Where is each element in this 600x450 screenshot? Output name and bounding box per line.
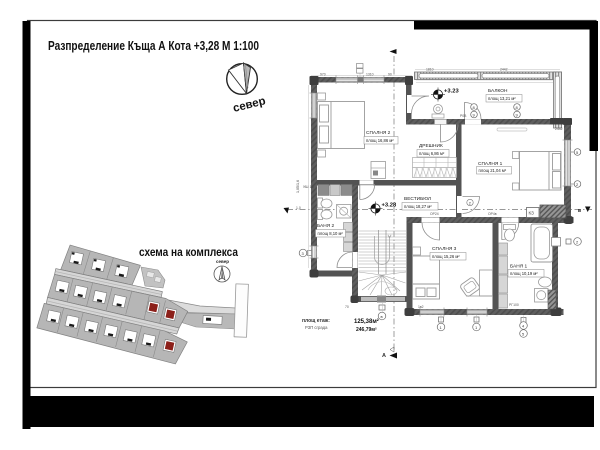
svg-text:БАЛКОН: БАЛКОН bbox=[488, 88, 508, 94]
svg-text:ДРЕШНИК: ДРЕШНИК bbox=[419, 143, 443, 149]
svg-text:70: 70 bbox=[345, 305, 349, 309]
svg-text:1в2: 1в2 bbox=[418, 305, 424, 309]
svg-text:РЗП сграда: РЗП сграда bbox=[305, 325, 328, 330]
svg-text:970: 970 bbox=[320, 73, 326, 77]
svg-text:СПАЛНЯ 2: СПАЛНЯ 2 bbox=[366, 130, 391, 136]
svg-text:БАНЯ 1: БАНЯ 1 bbox=[510, 264, 528, 270]
svg-text:246,79м²: 246,79м² bbox=[356, 327, 377, 333]
svg-text:площ 10,19 м²: площ 10,19 м² bbox=[510, 271, 538, 276]
svg-text:площ 15,26 м²: площ 15,26 м² bbox=[432, 254, 460, 259]
svg-text:1,0: 1,0 bbox=[296, 206, 301, 210]
svg-text:в: в bbox=[381, 314, 383, 319]
svg-text:+3.23: +3.23 bbox=[444, 89, 459, 95]
svg-text:в: в bbox=[578, 208, 581, 214]
svg-text:1310: 1310 bbox=[366, 73, 374, 77]
svg-text:площ 18,27 м²: площ 18,27 м² bbox=[404, 204, 432, 209]
svg-text:площ 21,04 м²: площ 21,04 м² bbox=[479, 168, 507, 173]
svg-text:1810: 1810 bbox=[426, 68, 434, 72]
svg-text:1,05/1,6: 1,05/1,6 bbox=[296, 180, 300, 193]
svg-text:2: 2 bbox=[469, 202, 471, 206]
svg-text:схема на комплекса: схема на комплекса bbox=[139, 245, 238, 259]
svg-text:Р0В: Р0В bbox=[460, 114, 467, 118]
svg-text:площ 6,86 м²: площ 6,86 м² bbox=[419, 151, 445, 156]
svg-text:площ 16,86 м²: площ 16,86 м² bbox=[366, 138, 394, 143]
svg-text:север: север bbox=[216, 259, 229, 264]
svg-text:СПАЛНЯ 1: СПАЛНЯ 1 bbox=[478, 161, 503, 167]
svg-text:90: 90 bbox=[388, 73, 392, 77]
svg-text:Разпределение Къща А Кота +3,2: Разпределение Къща А Кота +3,28 М 1:100 bbox=[48, 38, 259, 53]
svg-text:СПАЛНЯ 3: СПАЛНЯ 3 bbox=[432, 246, 457, 252]
svg-text:площ 13,21 м²: площ 13,21 м² bbox=[488, 96, 516, 101]
svg-text:БАНЯ 2: БАНЯ 2 bbox=[317, 223, 335, 229]
svg-text:площ етаж:: площ етаж: bbox=[302, 318, 330, 324]
svg-text:площ 8,10 м²: площ 8,10 м² bbox=[318, 231, 344, 236]
svg-text:РГ100: РГ100 bbox=[509, 303, 519, 307]
svg-text:+3.28: +3.28 bbox=[382, 203, 397, 209]
svg-text:ОР4в: ОР4в bbox=[488, 212, 497, 216]
svg-text:А: А bbox=[382, 353, 386, 359]
svg-text:КЗ: КЗ bbox=[529, 211, 535, 216]
svg-text:ВЕСТИБЮЛ: ВЕСТИБЮЛ bbox=[404, 196, 431, 202]
svg-text:125,38м²: 125,38м² bbox=[354, 318, 379, 325]
svg-text:2442: 2442 bbox=[500, 68, 508, 72]
svg-text:ОР24: ОР24 bbox=[430, 212, 439, 216]
svg-text:2442: 2442 bbox=[555, 127, 563, 131]
